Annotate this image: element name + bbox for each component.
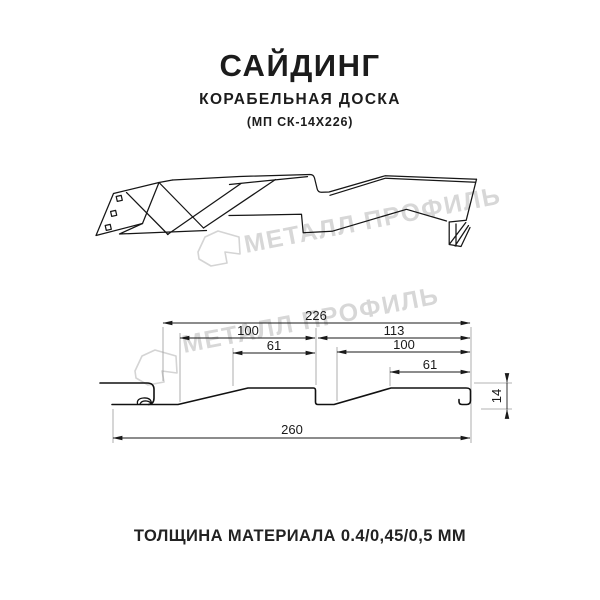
dim-label-right-flat: 100: [393, 337, 415, 352]
dim-label-right-top-face: 61: [423, 357, 437, 372]
metal-profil-logo-icon: [198, 231, 240, 266]
dimension-lines: [113, 323, 507, 438]
end-hem: [449, 222, 470, 247]
dim-label-profile-height: 14: [489, 389, 504, 403]
technical-drawing: МЕТАЛЛ ПРОФИЛЬ МЕТАЛЛ ПРОФИЛЬ: [0, 0, 600, 600]
product-spec-sheet: САЙДИНГ КОРАБЕЛЬНАЯ ДОСКА (МП СК-14Х226)…: [0, 0, 600, 600]
material-thickness-label: ТОЛЩИНА МАТЕРИАЛА 0.4/0,45/0,5 ММ: [0, 527, 600, 546]
top-far-edge: [173, 175, 477, 193]
nail-hole: [105, 224, 111, 230]
nail-hole: [111, 210, 117, 216]
nail-hole: [116, 195, 122, 201]
dim-label-right-segment: 113: [384, 323, 405, 338]
dim-label-left-flat: 100: [237, 323, 259, 338]
watermark-upper: МЕТАЛЛ ПРОФИЛЬ: [198, 182, 504, 266]
extension-lines: [113, 327, 512, 443]
metal-profil-logo-icon: [135, 350, 177, 385]
section-profile-outline: [100, 383, 471, 405]
dim-label-overall-bottom: 260: [281, 422, 303, 437]
dim-label-left-top-face: 61: [267, 338, 281, 353]
dim-label-overall-top: 226: [305, 308, 327, 323]
left-lock-curl: [137, 398, 151, 404]
